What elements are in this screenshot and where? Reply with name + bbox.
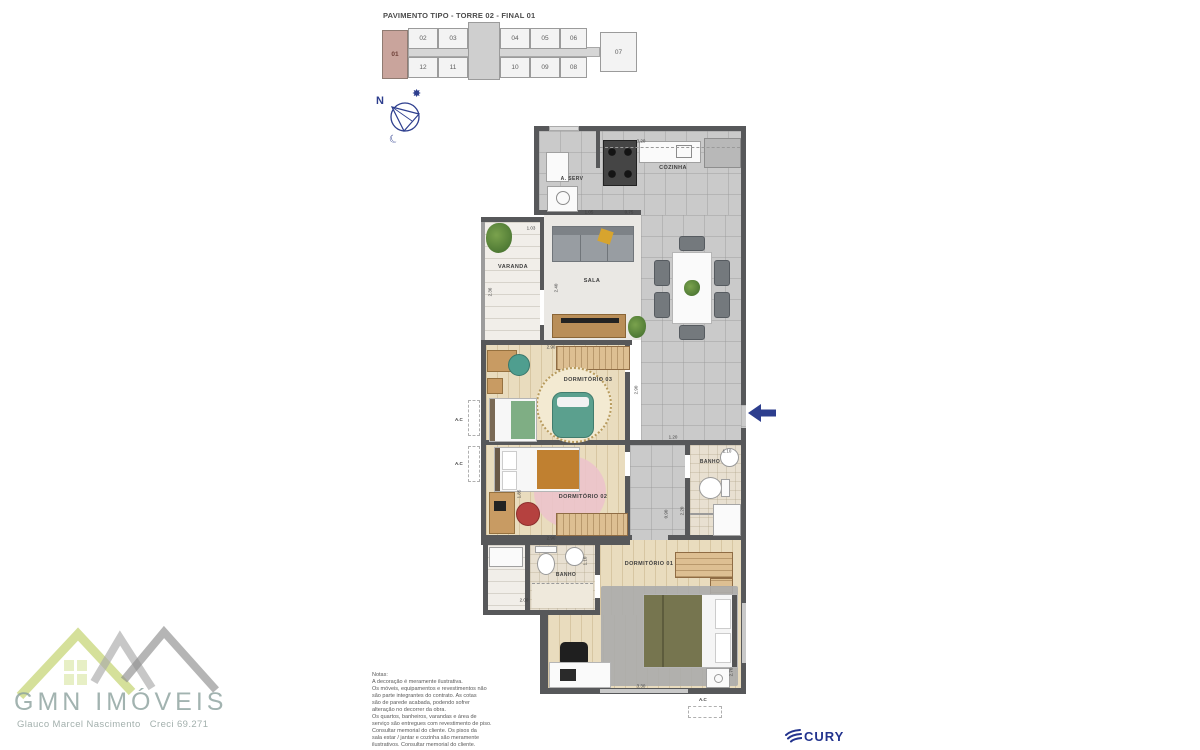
wardrobe-dorm03 xyxy=(556,346,630,370)
dining-chair xyxy=(714,260,730,286)
nightstand-dorm03 xyxy=(487,378,503,394)
toilet-tank xyxy=(535,546,557,553)
room-label-cozinha: COZINHA xyxy=(659,165,687,171)
unit-11: 11 xyxy=(438,57,468,78)
headboard xyxy=(495,448,500,491)
room-label-dorm01: DORMITÓRIO 01 xyxy=(625,561,674,567)
toilet xyxy=(537,553,555,575)
unit-06: 06 xyxy=(560,28,587,49)
notes-line: Consultar memorial do cliente. Os pisos … xyxy=(372,728,500,735)
room-label-serv: A. SERV xyxy=(561,176,584,182)
wall-segment xyxy=(685,478,690,540)
toilet-tank xyxy=(721,479,730,497)
dim-label: 0.75 xyxy=(625,210,634,215)
ac-label: A.C xyxy=(455,461,463,466)
wall-segment xyxy=(534,126,539,215)
dining-chair xyxy=(654,260,670,286)
room-label-banho2: BANHO xyxy=(556,572,576,578)
dining-chair xyxy=(679,325,705,340)
dim-label: 1.10 xyxy=(583,557,588,566)
keyplan-core xyxy=(468,22,500,80)
dim-label: 3.20 xyxy=(637,139,646,144)
headboard xyxy=(490,399,495,441)
wall-segment xyxy=(668,535,690,540)
pillow xyxy=(597,228,613,244)
unit-09: 09 xyxy=(530,57,560,78)
ac-unit-box xyxy=(468,446,480,482)
room-label-dorm03: DORMITÓRIO 03 xyxy=(564,377,613,383)
unit-12: 12 xyxy=(408,57,438,78)
pillow xyxy=(715,633,731,663)
dining-chair xyxy=(714,292,730,318)
dim-label: 0.90 xyxy=(664,510,669,519)
blanket-fold xyxy=(662,595,664,667)
room-label-sala: SALA xyxy=(584,278,601,284)
notes-block: Notas: A decoração é meramente ilustrati… xyxy=(372,672,500,749)
wall-segment xyxy=(540,222,544,290)
cury-logo-text: CURY xyxy=(804,729,844,744)
room-label-banho1: BANHO xyxy=(700,459,720,465)
dim-label: 2.36 xyxy=(488,288,493,297)
cury-logo: CURY xyxy=(784,728,844,744)
notes-line: Os quartos, banheiros, varandas e área d… xyxy=(372,714,500,721)
dim-label: 2.00 xyxy=(520,598,529,603)
pillow xyxy=(715,599,731,629)
notes-line: serviço são entregues com revestimento d… xyxy=(372,721,500,728)
monitor xyxy=(494,501,506,511)
dim-label: 3.30 xyxy=(637,684,646,689)
wardrobe-dorm01 xyxy=(675,552,733,578)
bed-dorm03 xyxy=(489,398,537,442)
floor-entrance-gap xyxy=(741,405,746,428)
unit-10: 10 xyxy=(500,57,530,78)
floor-plan-page: PAVIMENTO TIPO - TORRE 02 - FINAL 01 01 … xyxy=(0,0,1200,750)
unit-04: 04 xyxy=(500,28,530,49)
notes-line: são parte integrantes do contrato. As co… xyxy=(372,693,500,700)
wall-segment xyxy=(625,372,630,445)
keyplan-title: PAVIMENTO TIPO - TORRE 02 - FINAL 01 xyxy=(383,11,535,20)
notes-line: Os móveis, equipamentos e revestimentos … xyxy=(372,686,500,693)
dim-label: 1.85 xyxy=(517,490,522,499)
ac-unit-box xyxy=(688,706,722,718)
laptop xyxy=(560,669,576,681)
bathtub xyxy=(713,504,741,536)
moon-icon: ☾ xyxy=(387,132,401,146)
kitchen-cabinet xyxy=(704,138,741,168)
sun-icon: ✸ xyxy=(412,88,421,100)
sofa-back xyxy=(553,227,633,235)
notes-line: Notas: xyxy=(372,672,500,679)
notes-line: são de parede acabada, podendo sofrer xyxy=(372,700,500,707)
lamp xyxy=(714,674,723,683)
north-label: N xyxy=(376,95,384,107)
dim-label: 2.90 xyxy=(547,345,556,350)
wardrobe-dorm02 xyxy=(556,513,628,536)
dim-label: 2.90 xyxy=(634,386,639,395)
dim-label: 2.90 xyxy=(547,536,556,541)
desk-dorm01 xyxy=(549,662,611,688)
room-label-dorm02: DORMITÓRIO 02 xyxy=(559,494,608,500)
notes-line: A decoração é meramente ilustrativa. xyxy=(372,679,500,686)
toilet xyxy=(699,477,722,499)
unit-02: 02 xyxy=(408,28,438,49)
wall-segment xyxy=(481,340,632,345)
unit-08: 08 xyxy=(560,57,587,78)
notes-line: ilustrativos. Consultar memorial do clie… xyxy=(372,742,500,749)
headboard xyxy=(732,595,737,667)
blanket xyxy=(644,595,702,667)
pillow xyxy=(502,471,517,490)
ac-label: A.C xyxy=(699,697,707,702)
roof-window xyxy=(64,660,87,685)
dim-label: 1.20 xyxy=(669,435,678,440)
counter-dashed-line xyxy=(600,147,740,148)
wall-segment xyxy=(625,445,630,452)
gmn-subtitle: Glauco Marcel Nascimento Creci 69.271 xyxy=(17,719,208,730)
desk-chair-dorm03 xyxy=(508,354,530,376)
ac-label: A.C xyxy=(455,417,463,422)
unit-07: 07 xyxy=(600,32,637,72)
varanda-railing xyxy=(481,222,485,345)
bed-dorm01 xyxy=(643,594,738,668)
unit-01: 01 xyxy=(382,30,408,79)
tv xyxy=(561,318,619,323)
dim-label: 1.10 xyxy=(723,449,732,454)
unit-05: 05 xyxy=(530,28,560,49)
blanket xyxy=(537,450,579,489)
room-label-varanda: VARANDA xyxy=(498,264,528,270)
floor-corridor xyxy=(630,445,685,540)
dim-label: 2.70 xyxy=(729,668,734,677)
blanket xyxy=(511,401,535,439)
window xyxy=(742,603,746,663)
wall-segment xyxy=(595,540,600,575)
pillow xyxy=(502,451,517,470)
nightstand-dorm01 xyxy=(706,668,730,688)
wall-segment xyxy=(481,217,544,222)
dim-label: 1.03 xyxy=(527,226,536,231)
desk-dorm02 xyxy=(489,492,515,534)
dining-chair xyxy=(679,236,705,251)
unit-03: 03 xyxy=(438,28,468,49)
pouf-dorm03 xyxy=(552,392,594,438)
shower-divider xyxy=(690,513,714,515)
wall-segment xyxy=(741,126,746,405)
notes-line: alteração no decorrer da obra. xyxy=(372,707,500,714)
wall-segment xyxy=(685,445,690,455)
dim-label: 2.40 xyxy=(554,284,559,293)
gmn-logo-text: GMN IMÓVEIS xyxy=(14,688,227,717)
wall-segment xyxy=(540,610,548,694)
wall-segment xyxy=(596,131,600,168)
cury-wing-icon xyxy=(784,728,802,744)
washing-machine-door xyxy=(556,191,570,205)
notes-line: sala estar / jantar e cozinha são merame… xyxy=(372,735,500,742)
tv-stand xyxy=(552,314,626,338)
desk-chair-dorm02 xyxy=(516,502,540,526)
ac-unit-box xyxy=(468,400,480,436)
window xyxy=(600,689,688,693)
dim-label: 1.05 xyxy=(585,210,594,215)
entrance-arrow-icon xyxy=(748,404,776,422)
storage-closet xyxy=(489,547,523,567)
dining-chair xyxy=(654,292,670,318)
dim-label: 2.20 xyxy=(680,507,685,516)
bed-dorm02 xyxy=(494,447,580,492)
window xyxy=(549,126,579,131)
shower-area xyxy=(532,583,593,608)
keyplan: 01 02 03 04 05 06 07 12 11 10 09 08 xyxy=(380,22,638,80)
sofa-seat-line xyxy=(580,235,581,261)
bathroom-sink xyxy=(565,547,584,566)
compass: N ✸ ☾ xyxy=(372,84,424,146)
wall-segment xyxy=(483,540,488,615)
pillow xyxy=(557,397,589,407)
sofa xyxy=(552,226,634,262)
